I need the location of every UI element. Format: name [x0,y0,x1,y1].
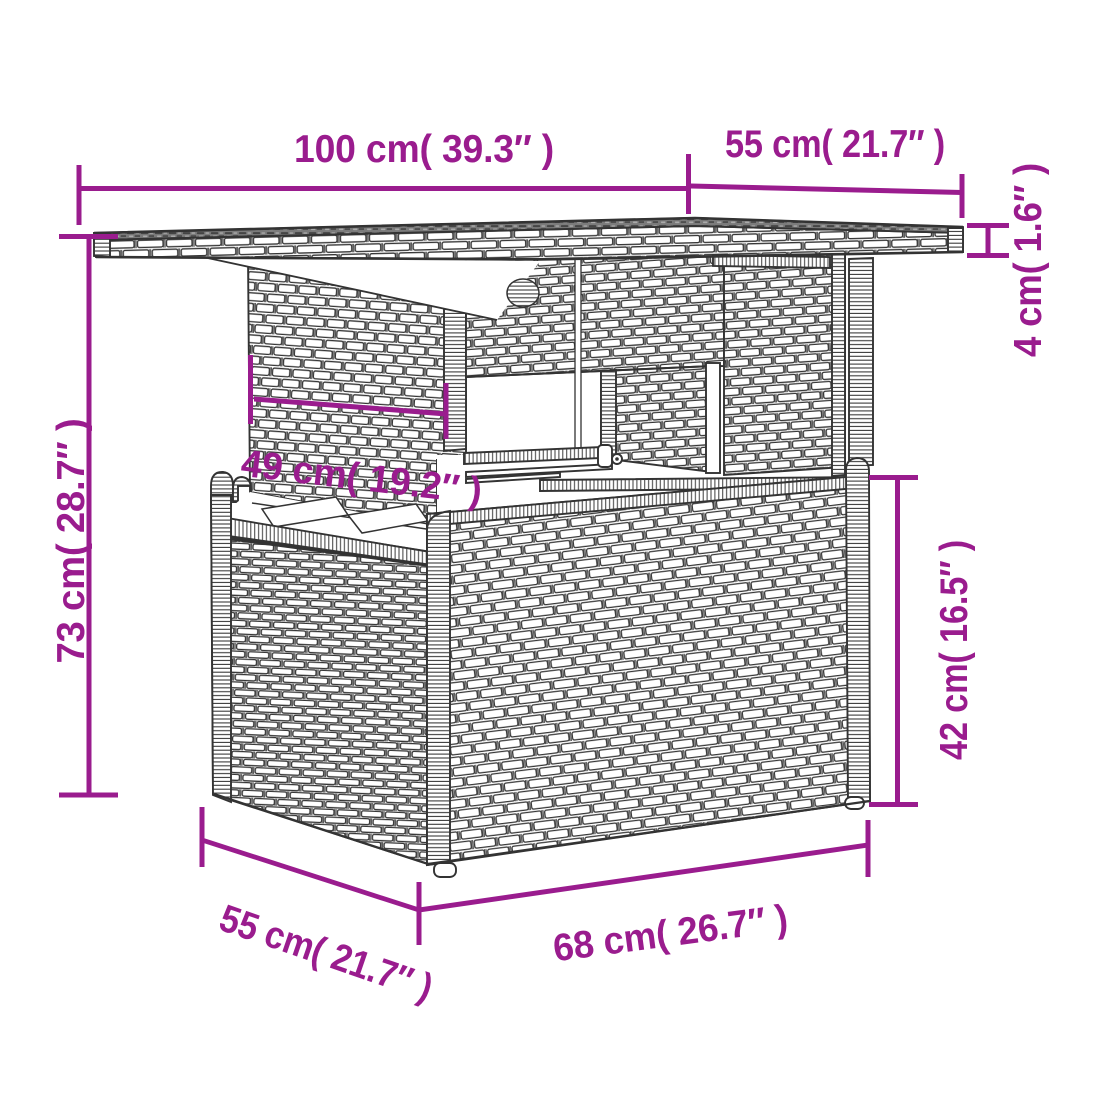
svg-text:100 cm( 39.3″ ): 100 cm( 39.3″ ) [294,128,554,171]
svg-text:4 cm( 1.6″ ): 4 cm( 1.6″ ) [1007,163,1050,357]
svg-text:73 cm( 28.7″ ): 73 cm( 28.7″ ) [50,419,93,664]
svg-text:42 cm( 16.5″ ): 42 cm( 16.5″ ) [933,540,976,760]
svg-text:55 cm( 21.7″ ): 55 cm( 21.7″ ) [725,123,945,166]
